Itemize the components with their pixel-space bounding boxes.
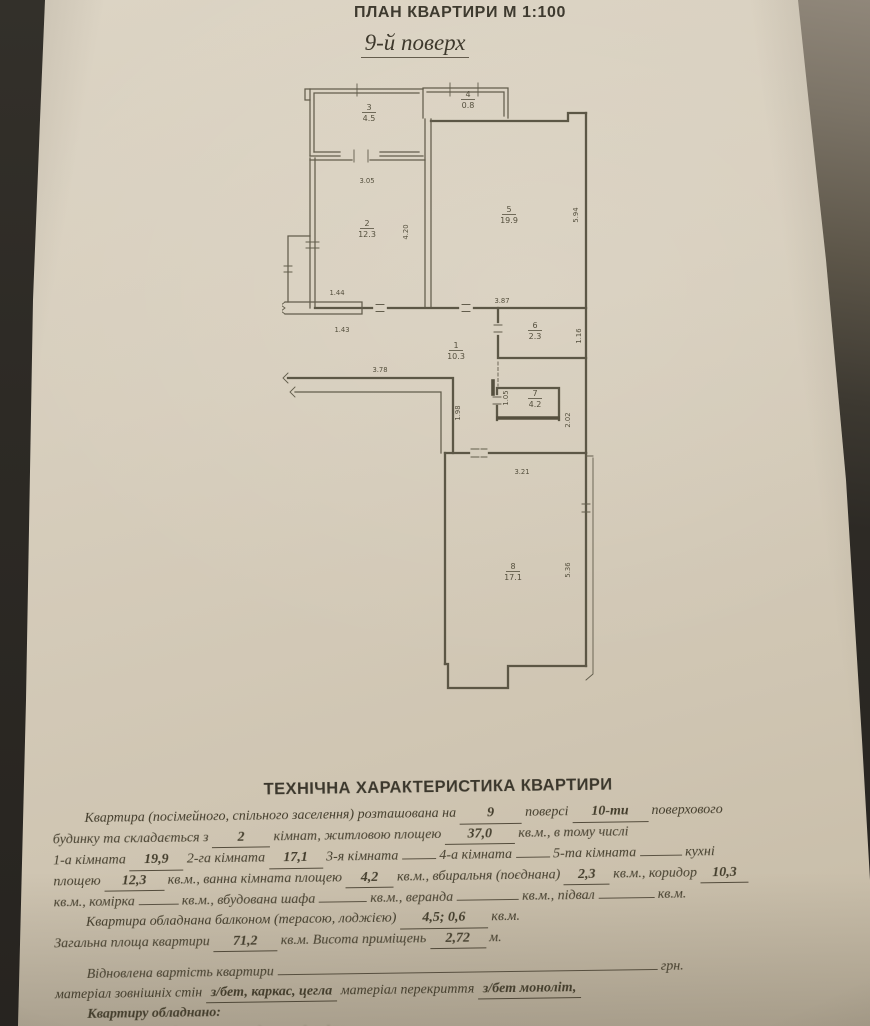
svg-text:4: 4 — [465, 90, 470, 99]
paper-sheet: ПЛАН КВАРТИРИ М 1:100 9-й поверх — [0, 0, 870, 1026]
tech-text: площею — [53, 873, 104, 889]
tech-text: кімнат, житловою площею — [270, 827, 445, 844]
tech-text: 2-га кімната — [183, 851, 268, 867]
room-label: 40.8 — [461, 90, 475, 110]
tech-value: 2,3 — [564, 864, 610, 885]
blank-field — [456, 886, 518, 901]
technical-characteristics-section: ТЕХНІЧНА ХАРАКТЕРИСТИКА КВАРТИРИ Квартир… — [52, 773, 828, 1026]
dimension-label: 1.43 — [334, 326, 349, 334]
dimension-label: 2.02 — [564, 412, 572, 427]
floor-label-text: 9-й поверх — [361, 30, 470, 58]
tech-value: 17,1 — [268, 848, 322, 869]
tech-text: 5-та кімната — [550, 845, 640, 861]
tech-text: кв.м. — [488, 909, 520, 924]
blank-field — [598, 884, 654, 899]
tech-text: кв.м. Висота приміщень — [277, 931, 430, 948]
tech-lines: Квартира (посімейного, спільного заселен… — [52, 799, 827, 1026]
tech-text: грн. — [657, 959, 684, 974]
tech-text: кв.м., вбиральня (поєднана) — [393, 867, 564, 884]
tech-title: ТЕХНІЧНА ХАРАКТЕРИСТИКА КВАРТИРИ — [52, 773, 824, 803]
svg-text:2.3: 2.3 — [529, 332, 542, 341]
tech-value: з/бет, каркас, цегла — [206, 981, 338, 1003]
svg-text:7: 7 — [532, 389, 537, 398]
tech-text: Відновлена вартість квартири — [87, 964, 278, 982]
svg-text:10.3: 10.3 — [447, 352, 465, 361]
dimension-label: 4.20 — [402, 224, 410, 239]
tech-value: 19,9 — [129, 850, 183, 871]
svg-text:19.9: 19.9 — [500, 216, 518, 225]
dimension-label: 1.98 — [454, 405, 462, 420]
tech-text: 1-а кімната — [53, 853, 129, 869]
dimension-label: 1.16 — [575, 328, 583, 343]
tech-value: 12,3 — [104, 871, 164, 892]
room-label: 62.3 — [528, 321, 542, 341]
svg-text:2: 2 — [364, 219, 369, 228]
tech-value: 9 — [459, 803, 521, 824]
tech-text: м. — [486, 930, 502, 945]
tech-value: 2,72 — [430, 928, 486, 949]
tech-text: кв.м., комірка — [54, 895, 139, 911]
blank-field — [319, 888, 367, 903]
floor-plan-drawing: 110.3212.334.540.8519.962.374.2817.13.05… — [282, 76, 604, 718]
tech-text: кв.м., вбудована шафа — [178, 892, 319, 909]
svg-text:0.8: 0.8 — [462, 101, 475, 110]
tech-text: Загальна площа квартири — [54, 934, 213, 951]
room-label: 519.9 — [500, 205, 518, 225]
tech-text: кв.м., підвал — [519, 888, 599, 904]
dimension-label: 3.78 — [372, 366, 387, 374]
svg-text:12.3: 12.3 — [358, 230, 376, 239]
svg-text:5: 5 — [506, 205, 511, 214]
svg-text:4.5: 4.5 — [363, 114, 376, 123]
blank-field — [138, 891, 178, 906]
tech-text: матеріал зовнішніх стін — [55, 985, 206, 1002]
tech-text: 3-я кімната — [322, 849, 401, 865]
tech-text: кв.м., ванна кімната площею — [164, 870, 346, 888]
tech-text: поверхового — [648, 802, 723, 818]
tech-value: 4,2 — [345, 867, 393, 888]
room-label: 34.5 — [362, 103, 376, 123]
room-label: 212.3 — [358, 219, 376, 239]
tech-text: кв.м., коридор — [610, 865, 701, 881]
tech-value: 37,0 — [445, 824, 515, 846]
plan-title: ПЛАН КВАРТИРИ М 1:100 — [300, 4, 620, 22]
dimension-label: 1.05 — [502, 390, 510, 405]
tech-text: будинку та складається з — [53, 830, 212, 847]
tech-value: 10,3 — [700, 862, 748, 883]
tech-text: кв.м., в тому числі — [515, 824, 629, 841]
tech-text: кв.м. — [654, 887, 686, 902]
blank-field — [402, 845, 436, 859]
dimension-label: 5.94 — [572, 207, 580, 222]
blank-field — [640, 842, 682, 857]
dimension-label: 1.44 — [329, 289, 344, 297]
room-label: 74.2 — [528, 389, 542, 409]
svg-text:17.1: 17.1 — [504, 573, 522, 582]
tech-text: Квартира (посімейного, спільного заселен… — [84, 806, 459, 826]
svg-text:8: 8 — [510, 562, 515, 571]
tech-text: 4-а кімната — [436, 847, 516, 863]
tech-value: 10-ти — [572, 801, 648, 823]
tech-value: з/бет моноліт, — [478, 978, 582, 1000]
svg-text:3: 3 — [366, 103, 371, 112]
dimension-label: 3.05 — [359, 177, 374, 185]
blank-field — [515, 844, 549, 858]
svg-text:6: 6 — [532, 321, 537, 330]
tech-text: Квартира обладнана балконом (терасою, ло… — [86, 911, 400, 930]
svg-text:1: 1 — [453, 341, 458, 350]
room-label: 817.1 — [504, 562, 522, 582]
tech-text: поверсі — [521, 804, 572, 820]
tech-value: 2 — [212, 827, 270, 848]
tech-text: кв.м., веранда — [367, 890, 457, 906]
floor-label: 9-й поверх — [330, 30, 500, 56]
photo: ПЛАН КВАРТИРИ М 1:100 9-й поверх — [0, 0, 870, 1026]
tech-value: 71,2 — [213, 931, 277, 952]
dimension-label: 3.21 — [514, 468, 529, 476]
blank-field — [277, 956, 657, 975]
room-label: 110.3 — [447, 341, 465, 361]
tech-text: кухні — [682, 844, 715, 859]
dimension-label: 3.87 — [494, 297, 509, 305]
tech-value: 4,5; 0,6 — [400, 907, 488, 929]
tech-text: Квартиру обладнано: — [87, 1005, 221, 1022]
svg-text:4.2: 4.2 — [529, 400, 542, 409]
dimension-label: 5.36 — [564, 562, 572, 577]
tech-text: матеріал перекриття — [337, 981, 478, 998]
